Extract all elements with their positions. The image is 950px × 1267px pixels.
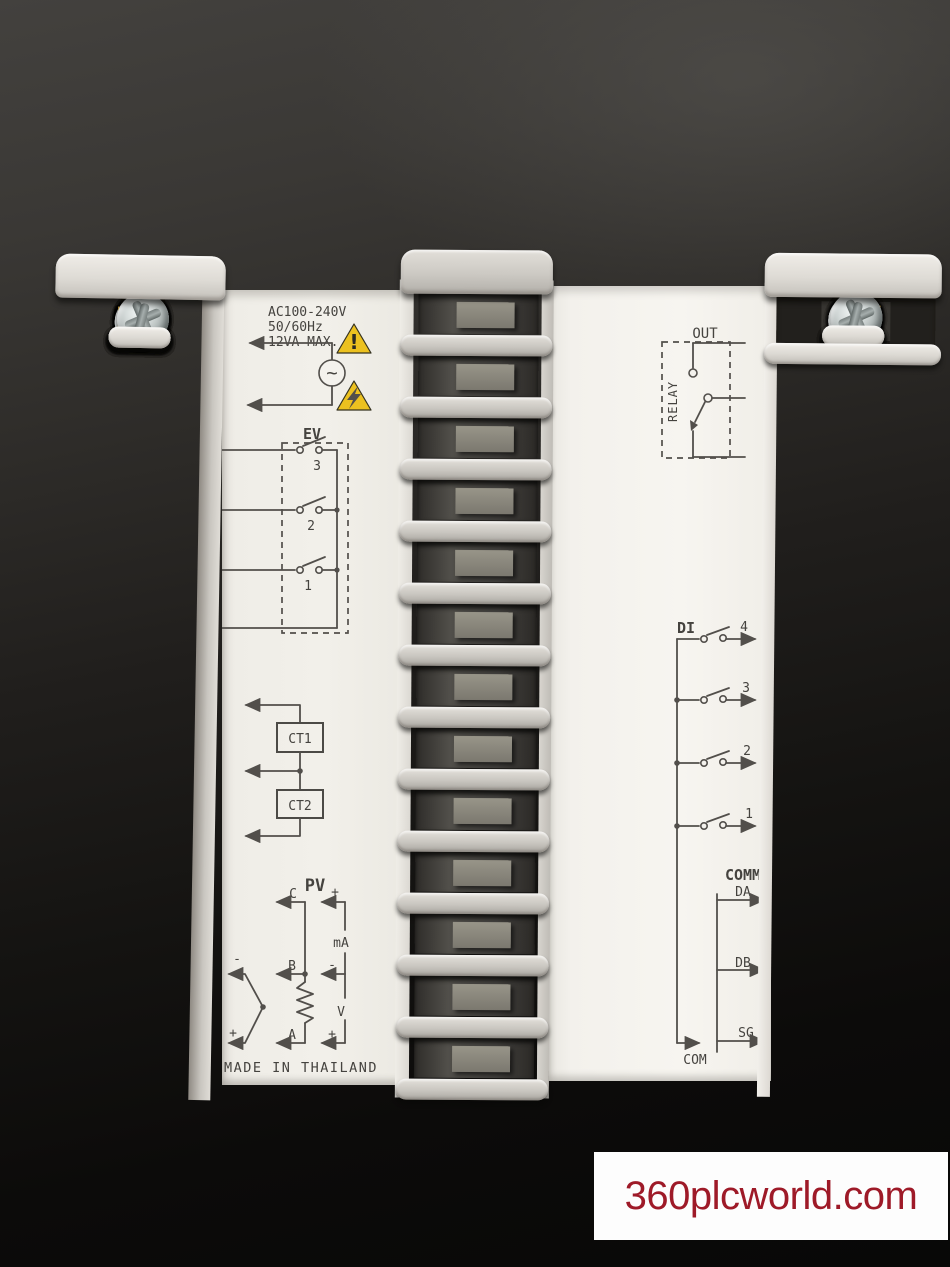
pv-ma-label: mA	[333, 936, 349, 951]
power-rating-line2: 50/60Hz	[268, 320, 323, 335]
terminal-barrier-fin	[399, 583, 551, 605]
di-input-1: 1	[674, 807, 755, 829]
terminal-barrier-fin	[398, 707, 550, 729]
terminal-slot-cell	[404, 728, 546, 791]
thermocouple-symbol: - +	[229, 952, 266, 1043]
left-wiring-diagram: AC100-240V 50/60Hz 12VA MAX. ~ ! EV	[222, 290, 407, 1085]
terminal-barrier-fin	[400, 397, 552, 419]
tc-plus-sign: +	[229, 1026, 237, 1041]
slot-contact-tab	[452, 1046, 510, 1072]
pv-section: PV C + mA - V + B A	[224, 876, 378, 1076]
terminal-slot-cell	[406, 418, 548, 481]
terminal-barrier-fin	[108, 326, 170, 348]
slot-contact-tab	[453, 984, 511, 1010]
ct1-label: CT1	[288, 732, 311, 747]
ct-section: CT1 CT2	[246, 705, 323, 836]
slot-contact-tab	[457, 364, 515, 390]
ct2-label: CT2	[288, 799, 311, 814]
pv-terminal-b: B	[288, 959, 296, 974]
tc-minus-sign: -	[233, 952, 241, 967]
terminal-slot-cell	[402, 976, 544, 1039]
terminal-cell	[114, 296, 167, 349]
empty-slot-recess	[415, 790, 535, 831]
terminal-slot-cell	[405, 542, 547, 605]
empty-slot-recess	[418, 294, 538, 335]
empty-slot-recess	[414, 976, 534, 1017]
right-terminal-cells	[770, 297, 938, 366]
right-terminal-strip	[763, 253, 938, 1101]
pv-terminal-a: A	[288, 1028, 296, 1043]
relay-wiper-arrow	[690, 420, 698, 431]
power-section: AC100-240V 50/60Hz 12VA MAX. ~ !	[248, 305, 371, 410]
pv-minus-sign: -	[328, 958, 336, 973]
terminal-barrier-fin	[397, 893, 549, 915]
di-number: 3	[742, 681, 750, 696]
ev-contact-1: 1	[222, 557, 340, 594]
com-label: COM	[683, 1053, 707, 1068]
slot-contact-tab	[453, 922, 511, 948]
slot-contact-tab	[455, 612, 513, 638]
terminal-slot-cell	[405, 480, 547, 543]
out-section: OUT RELAY	[662, 326, 745, 458]
terminal-barrier-fin	[396, 1017, 548, 1039]
strip-top-cap	[55, 253, 226, 300]
slot-contact-tab	[454, 860, 512, 886]
ev-contact-number: 1	[304, 579, 312, 594]
terminal-slot-cell	[403, 914, 545, 977]
middle-terminal-cells	[402, 294, 549, 1101]
power-rating-line1: AC100-240V	[268, 305, 346, 320]
ev-contact-2: 2	[222, 497, 340, 534]
relay-label: RELAY	[666, 381, 680, 422]
empty-slot-recess	[417, 480, 537, 521]
resistor-symbol	[297, 982, 313, 1023]
comm-section: COMM DA DB SG COM	[677, 866, 764, 1068]
watermark-text: 360plcworld.com	[625, 1174, 918, 1219]
di-number: 2	[743, 744, 751, 759]
slot-contact-tab	[454, 736, 512, 762]
left-wiring-label: AC100-240V 50/60Hz 12VA MAX. ~ ! EV	[222, 290, 407, 1085]
pv-plus-sign: +	[331, 885, 339, 900]
terminal-barrier-fin	[398, 645, 550, 667]
empty-slot-recess	[415, 914, 535, 955]
strip-top-cap	[765, 253, 942, 299]
di-input-2: 2	[674, 744, 755, 766]
empty-slot-recess	[418, 356, 538, 397]
empty-slot-recess	[417, 604, 537, 645]
caution-exclamation: !	[349, 330, 358, 354]
slot-contact-tab	[457, 302, 515, 328]
di-title: DI	[677, 619, 695, 637]
empty-slot-recess	[416, 666, 536, 707]
terminal-slot-cell	[406, 294, 548, 357]
terminal-cell	[828, 294, 880, 346]
di-number: 4	[740, 620, 748, 635]
di-number: 1	[745, 807, 753, 822]
terminal-barrier-fin	[397, 831, 549, 853]
empty-slot-recess	[416, 728, 536, 769]
terminal-slot-cell	[404, 666, 546, 729]
pv-plus-sign: +	[328, 1027, 336, 1042]
middle-terminal-strip	[402, 250, 549, 1101]
slot-contact-tab	[455, 674, 513, 700]
right-wiring-diagram: OUT RELAY DI	[549, 286, 771, 1081]
terminal-barrier-fin	[397, 955, 549, 977]
pv-terminal-c: C	[289, 887, 297, 902]
terminal-slot-cell	[404, 604, 546, 667]
empty-slot-recess	[417, 542, 537, 583]
slot-contact-tab	[456, 426, 514, 452]
terminal-barrier-fin	[399, 521, 551, 543]
empty-slot-recess	[414, 1038, 534, 1079]
empty-slot-recess	[415, 852, 535, 893]
watermark-badge: 360plcworld.com	[594, 1152, 948, 1240]
pv-v-label: V	[337, 1005, 345, 1020]
di-input-3: 3	[674, 681, 755, 703]
left-terminal-strip	[47, 254, 222, 1105]
slot-contact-tab	[455, 550, 513, 576]
terminal-slot-cell	[403, 852, 545, 915]
slot-contact-tab	[454, 798, 512, 824]
terminal-slot-cell	[406, 356, 548, 419]
strip-top-cap	[401, 250, 553, 295]
comm-title: COMM	[725, 866, 761, 884]
ev-contact-number: 3	[313, 459, 321, 474]
terminal-slot-cell	[402, 1038, 544, 1101]
terminal-barrier-fin	[764, 343, 941, 366]
comm-sg-label: SG	[738, 1026, 754, 1041]
controller-rear-photo: AC100-240V 50/60Hz 12VA MAX. ~ ! EV	[0, 0, 950, 1267]
ac-symbol: ~	[326, 362, 337, 384]
slot-contact-tab	[456, 488, 514, 514]
terminal-barrier-fin	[396, 1079, 548, 1101]
empty-slot-recess	[418, 418, 538, 459]
right-wiring-label: OUT RELAY DI	[549, 286, 771, 1081]
ev-section: EV 3 2	[222, 425, 348, 633]
di-section: DI 4 3	[674, 619, 755, 1043]
pv-title: PV	[305, 876, 325, 896]
terminal-slot-cell	[403, 790, 545, 853]
out-title: OUT	[692, 326, 718, 342]
made-in-label: MADE IN THAILAND	[224, 1060, 378, 1076]
comm-da-label: DA	[735, 885, 751, 900]
comm-db-label: DB	[735, 956, 751, 971]
terminal-barrier-fin	[400, 335, 552, 357]
terminal-barrier-fin	[400, 459, 552, 481]
strip-side-rail	[188, 290, 224, 1100]
ev-contact-number: 2	[307, 519, 315, 534]
terminal-barrier-fin	[398, 769, 550, 791]
